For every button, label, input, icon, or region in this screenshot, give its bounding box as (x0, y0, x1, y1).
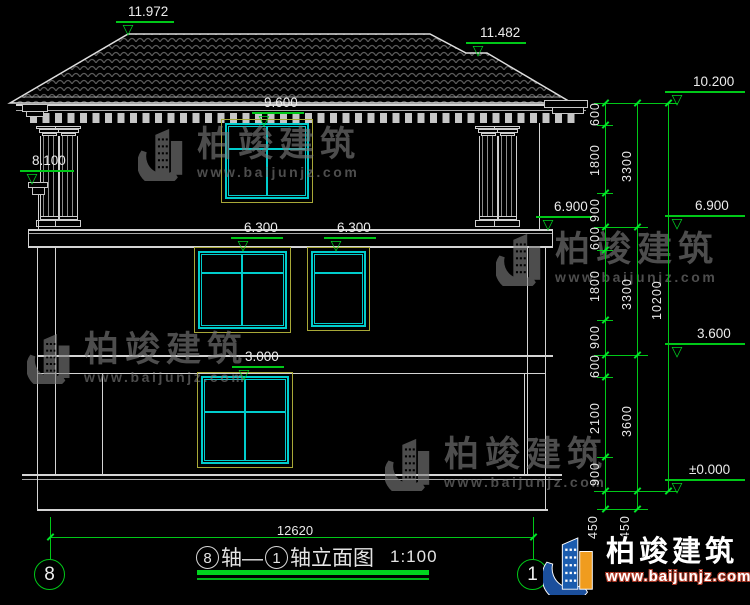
elevation-marker-window-ground: 3.000 ▽ (232, 349, 352, 368)
title-underline-thin (197, 578, 429, 580)
watermark-2: 柏竣建筑 www.baijunjz.com (496, 232, 719, 286)
elevation-triangle-icon: ▽ (116, 22, 140, 36)
brand-icon (138, 127, 190, 181)
watermark-url: www.baijunjz.com (444, 474, 608, 490)
elevation-marker-ground: ±0.000 ▽ (665, 462, 750, 481)
window-floor2-left (194, 247, 291, 333)
elevation-value: ±0.000 (689, 462, 750, 477)
corbel-bracket2 (32, 187, 45, 195)
watermark-brand: 柏竣建筑 (197, 127, 361, 163)
elevation-value: 6.900 (695, 198, 750, 213)
dim-label: 900 (588, 323, 603, 351)
elevation-value: 9.600 (264, 95, 372, 110)
elevation-triangle-icon: ▽ (232, 367, 256, 381)
dim-label: 900 (588, 196, 603, 224)
window-ground (197, 372, 293, 468)
brand-icon (385, 437, 437, 491)
title-scale: 1:100 (390, 547, 438, 567)
watermark-brand: 柏竣建筑 (444, 437, 608, 473)
title-axis-start: 8 (196, 546, 219, 569)
cornice-return-left2 (26, 111, 44, 117)
elevation-marker-10200: 10.200 ▽ (665, 74, 750, 93)
dim-chain-line-middle (637, 103, 638, 510)
elevation-marker-floor2: 3.600 ▽ (665, 326, 750, 345)
brand-logo-text: 柏竣建筑 (606, 537, 750, 567)
wall-edge-upper-left (38, 195, 39, 229)
elevation-triangle-icon: ▽ (252, 113, 276, 127)
cornice-end-right2 (552, 107, 584, 114)
watermark-4: 柏竣建筑 www.baijunjz.com (385, 437, 608, 491)
elevation-value: 8.100 (32, 153, 140, 168)
elevation-triangle-icon: ▽ (536, 217, 560, 231)
elevation-value: 3.600 (697, 326, 750, 341)
pilaster-left (102, 373, 103, 474)
elevation-value: 11.972 (128, 4, 236, 19)
elevation-triangle-icon: ▽ (466, 43, 490, 57)
title-suffix: 轴立面图 (290, 542, 374, 572)
axis-bubble-8: 8 (34, 559, 65, 590)
brand-icon (496, 232, 548, 286)
elevation-value: 11.482 (480, 25, 586, 40)
watermark-1: 柏竣建筑 www.baijunjz.com (138, 127, 361, 181)
elevation-marker-ridge-main: 11.972 ▽ (116, 4, 236, 23)
footing-line (37, 509, 548, 511)
elevation-marker-corbel: 8.100 ▽ (20, 153, 140, 172)
title-underline-thick (197, 570, 429, 575)
dim-chain-line-inner (605, 103, 606, 510)
watermark-brand: 柏竣建筑 (84, 332, 248, 368)
elevation-value: 6.300 (337, 220, 444, 235)
elevation-triangle-icon: ▽ (231, 238, 255, 252)
watermark-url: www.baijunjz.com (84, 369, 248, 385)
elevation-marker-floor3-chain: 6.900 ▽ (665, 198, 750, 217)
dim-label: 3600 (620, 401, 635, 441)
dim-label: 10200 (650, 272, 665, 328)
cad-elevation-drawing: 柏竣建筑 www.baijunjz.com 柏竣建筑 www.baijunjz.… (0, 0, 750, 605)
dim-chain-line-outer (668, 103, 669, 491)
dim-label: 2100 (588, 398, 603, 438)
elevation-marker-attic-window: 9.600 ▽ (252, 95, 372, 114)
elevation-triangle-icon: ▽ (324, 238, 348, 252)
drawing-title: 8轴—1轴立面图1:100 (196, 542, 438, 572)
dim-label: 900 (588, 460, 603, 488)
dim-label: 3300 (620, 146, 635, 186)
elevation-triangle-icon: ▽ (20, 171, 44, 185)
window-floor2-right (307, 247, 370, 331)
elevation-marker-window-right: 6.300 ▽ (324, 220, 444, 239)
elevation-value: 10.200 (693, 74, 750, 89)
dim-label: 1800 (588, 140, 603, 180)
dim-label: 1800 (588, 266, 603, 306)
elevation-marker-ridge-secondary: 11.482 ▽ (466, 25, 586, 44)
title-axis-end: 1 (265, 546, 288, 569)
brand-logo: 柏竣建筑 www.baijunjz.com (543, 537, 750, 595)
elevation-value: 3.000 (245, 349, 352, 364)
column-right-2 (494, 126, 520, 227)
title-connector: 轴— (221, 542, 263, 572)
dim-label: 600 (588, 100, 603, 128)
brand-logo-url: www.baijunjz.com (606, 568, 750, 585)
width-dim-label: 12620 (260, 523, 330, 538)
watermark-3: 柏竣建筑 www.baijunjz.com (27, 332, 248, 385)
column-left-2 (55, 126, 81, 227)
slab-notch-left (28, 229, 29, 247)
dim-label: 600 (588, 224, 603, 252)
watermark-url: www.baijunjz.com (197, 164, 361, 180)
dim-label: 600 (588, 352, 603, 380)
dim-label: 3300 (620, 274, 635, 314)
brand-icon (27, 332, 77, 384)
brand-logo-icon (543, 537, 601, 595)
